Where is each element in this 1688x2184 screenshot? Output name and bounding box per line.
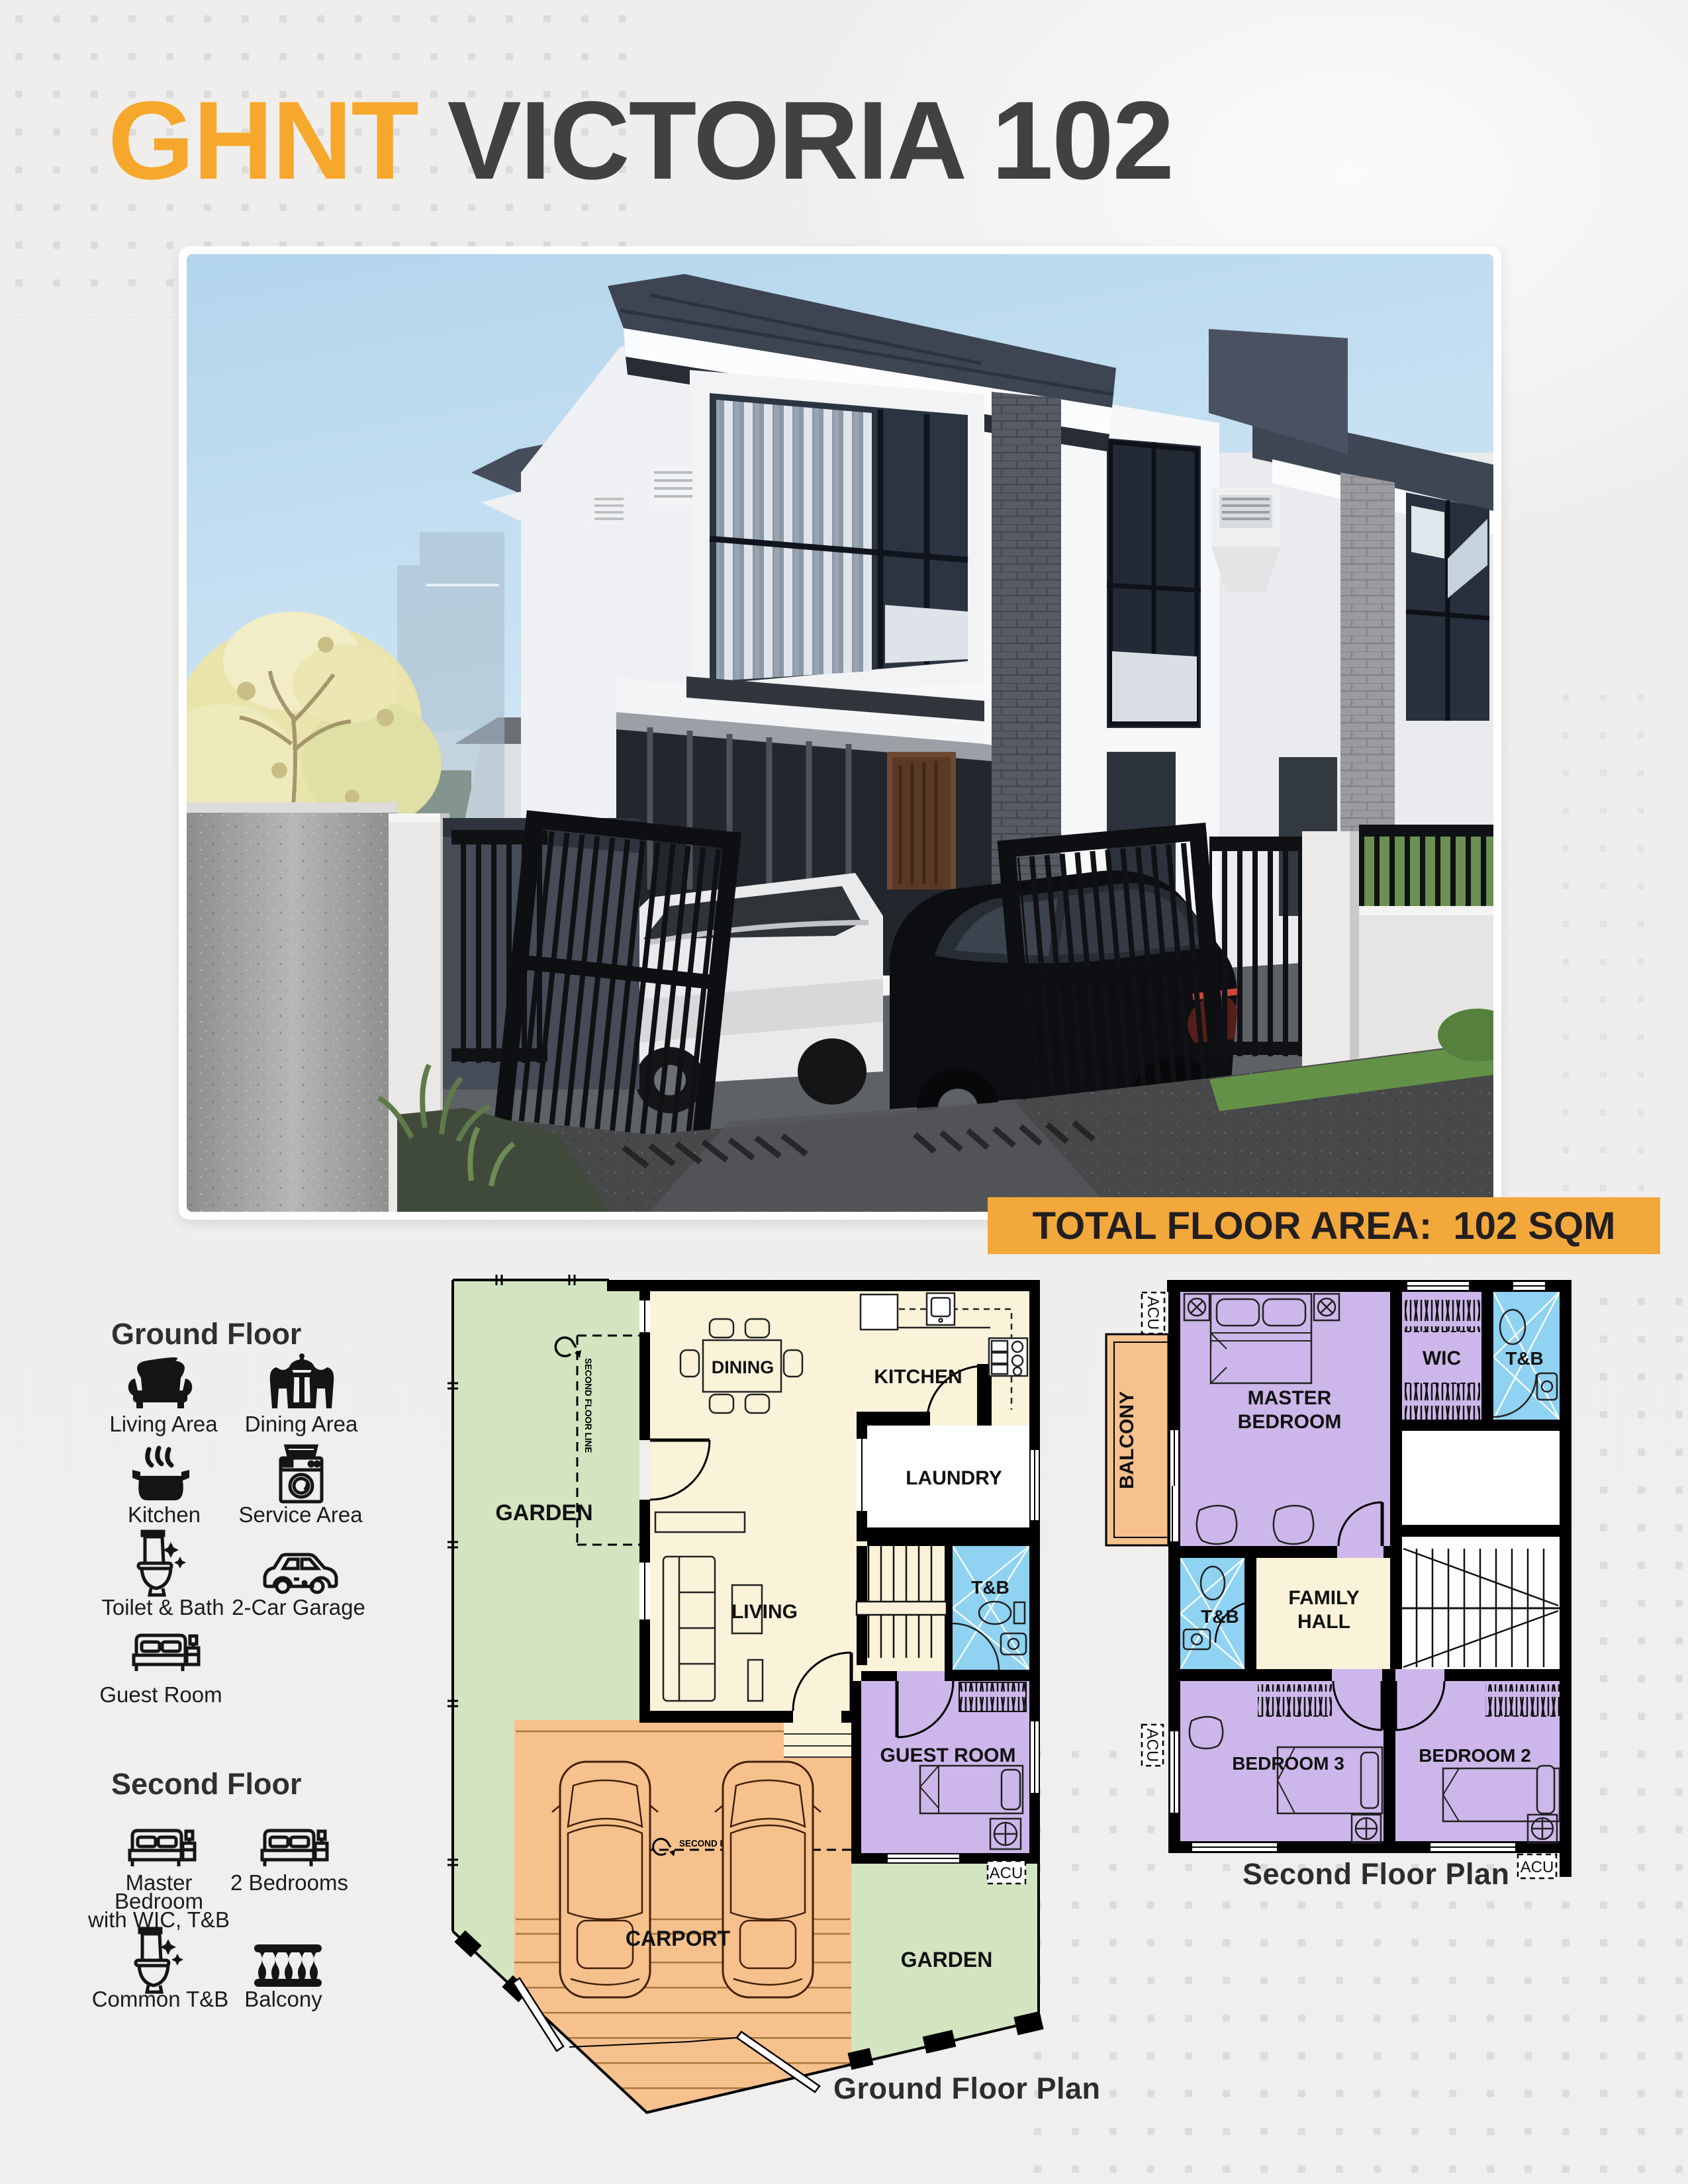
svg-text:Balcony: Balcony [244, 1987, 322, 2011]
svg-text:FAMILY: FAMILY [1288, 1587, 1359, 1609]
svg-text:T&B: T&B [1201, 1606, 1239, 1627]
svg-text:BEDROOM: BEDROOM [1238, 1411, 1342, 1433]
svg-text:T&B: T&B [971, 1577, 1009, 1598]
svg-text:SECOND FLOOR LINE: SECOND FLOOR LINE [583, 1358, 593, 1453]
svg-text:Dining Area: Dining Area [245, 1412, 358, 1436]
svg-text:GARDEN: GARDEN [495, 1500, 592, 1525]
svg-text:MASTER: MASTER [1248, 1387, 1332, 1409]
svg-text:DINING: DINING [712, 1357, 774, 1377]
svg-text:Living Area: Living Area [109, 1412, 218, 1436]
svg-text:WIC: WIC [1423, 1347, 1461, 1369]
svg-text:T&B: T&B [1505, 1348, 1544, 1369]
svg-text:Kitchen: Kitchen [128, 1502, 201, 1527]
svg-text:ACU: ACU [990, 1864, 1023, 1882]
svg-text:BALCONY: BALCONY [1116, 1391, 1138, 1489]
svg-text:Common T&B: Common T&B [92, 1987, 229, 2011]
svg-text:BEDROOM 3: BEDROOM 3 [1232, 1753, 1344, 1774]
svg-text:Service Area: Service Area [238, 1502, 363, 1527]
svg-text:BEDROOM 2: BEDROOM 2 [1419, 1745, 1531, 1766]
svg-text:GUEST ROOM: GUEST ROOM [880, 1745, 1015, 1766]
svg-text:ACU: ACU [1144, 1297, 1162, 1330]
svg-text:2-Car Garage: 2-Car Garage [232, 1595, 365, 1619]
svg-text:LAUNDRY: LAUNDRY [906, 1467, 1002, 1489]
svg-text:Guest Room: Guest Room [99, 1682, 222, 1707]
svg-text:LIVING: LIVING [731, 1601, 798, 1623]
svg-text:ACU: ACU [1521, 1858, 1554, 1876]
svg-text:KITCHEN: KITCHEN [874, 1366, 962, 1388]
svg-text:HALL: HALL [1297, 1611, 1350, 1633]
svg-text:2 Bedrooms: 2 Bedrooms [230, 1870, 348, 1895]
svg-text:Toilet & Bath: Toilet & Bath [101, 1595, 224, 1619]
svg-text:CARPORT: CARPORT [626, 1927, 731, 1950]
svg-text:GARDEN: GARDEN [901, 1948, 993, 1972]
svg-text:ACU: ACU [1143, 1729, 1161, 1762]
